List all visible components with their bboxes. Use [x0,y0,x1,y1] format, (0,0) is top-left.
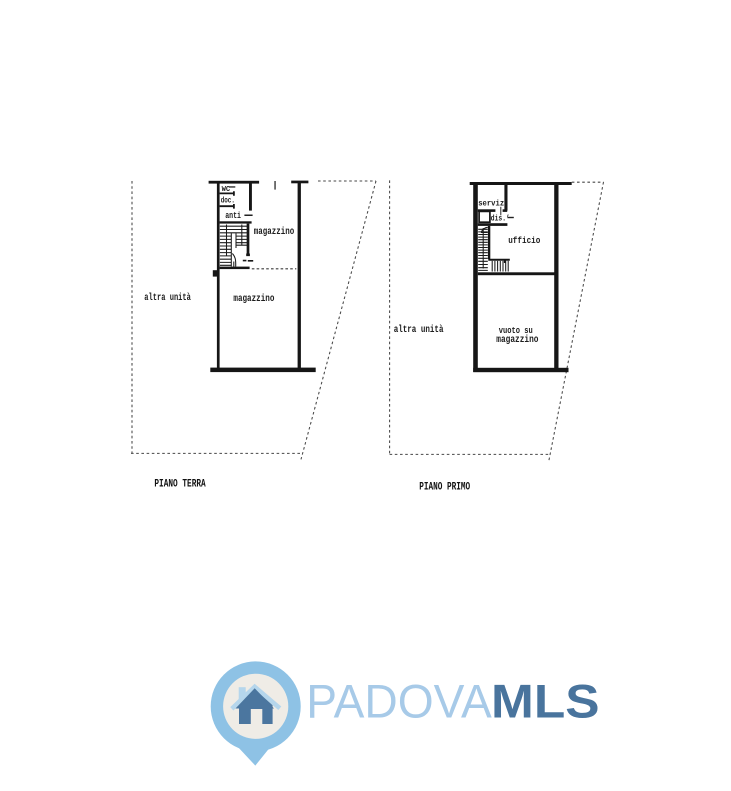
svg-text:altra unità: altra unità [144,292,191,304]
svg-text:PADOVA: PADOVA [306,676,492,729]
svg-text:vuoto su: vuoto su [499,325,533,336]
svg-text:dis.’: dis.’ [491,213,510,223]
svg-text:serviz: serviz [478,199,504,209]
svg-text:doc.: doc. [221,196,235,206]
svg-text:ufficio: ufficio [508,235,540,246]
svg-text:PIANO PRIMO: PIANO PRIMO [419,481,470,493]
svg-text:altra unità: altra unità [394,324,444,336]
svg-text:PIANO TERRA: PIANO TERRA [154,478,206,490]
svg-text:MLS: MLS [491,676,600,729]
svg-text:magazzino: magazzino [496,334,538,346]
svg-text:WC: WC [222,186,231,194]
svg-text:anti: anti [225,211,241,221]
svg-text:magazzino: magazzino [233,293,274,305]
svg-text:magazzino: magazzino [254,226,294,238]
